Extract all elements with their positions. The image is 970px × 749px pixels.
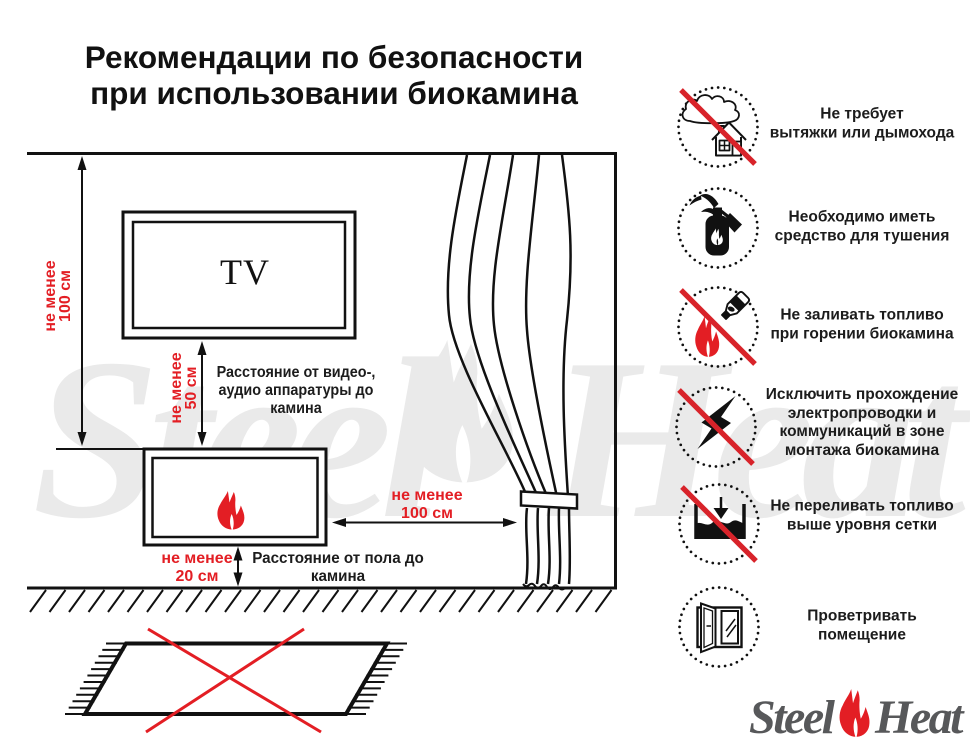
svg-text:Heat: Heat	[874, 691, 965, 744]
svg-text:Steel: Steel	[749, 691, 836, 744]
svg-text:TV: TV	[220, 252, 270, 292]
